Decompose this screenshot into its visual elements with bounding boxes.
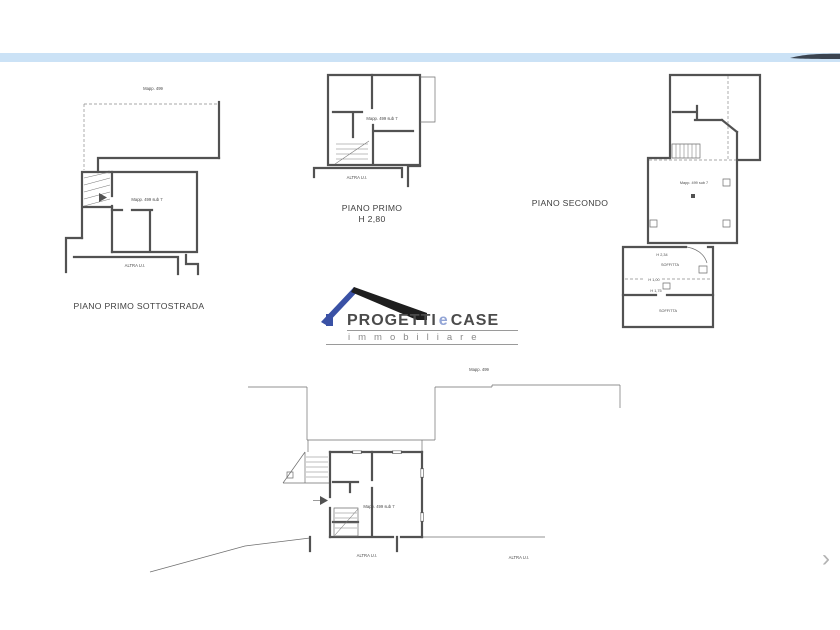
logo-text-sub: immobiliare bbox=[348, 332, 485, 343]
parcel-boundary bbox=[248, 385, 620, 440]
other-unit-label: ALTRA U.I. bbox=[357, 553, 378, 558]
unit-label: Mapp. 499 sub 7 bbox=[366, 116, 398, 121]
attic-height-upper: H 2,34 bbox=[656, 253, 667, 257]
plan2-walls bbox=[314, 75, 435, 186]
entrance-arrow-icon bbox=[320, 496, 328, 505]
attic-height-mid: H 1,00 bbox=[648, 278, 659, 282]
plan-title-sottostrada: PIANO PRIMO SOTTOSTRADA bbox=[74, 301, 205, 311]
door-swing-arc bbox=[687, 247, 707, 263]
logo-word-e: e bbox=[437, 312, 451, 329]
floorplan-primo: Mapp. 499 sub 7 ALTRA U.I. PIANO PRIMO H… bbox=[314, 75, 435, 224]
logo-divider-top bbox=[347, 330, 518, 331]
other-unit-label: ALTRA U.I. bbox=[347, 175, 368, 180]
attic-window-icons bbox=[663, 266, 707, 289]
chimney-icon bbox=[691, 194, 695, 198]
next-image-chevron[interactable]: › bbox=[822, 547, 830, 571]
floorplan-terra: Mapp. 499 Mapp. 499 sub 7 ALTRA U.I. ALT… bbox=[150, 367, 620, 572]
map-parcel-label: Mapp. 499 bbox=[143, 86, 163, 91]
attic-room-1: SOFFITTA bbox=[661, 263, 680, 267]
unit-label: Mapp. 499 sub 7 bbox=[131, 197, 163, 202]
attic-height-lower: H 1,75 bbox=[650, 289, 661, 293]
floorplan-page: Mapp. 499 Mapp. 499 sub 7 ALTRA U.I. PIA… bbox=[0, 0, 840, 630]
balcony-outline bbox=[420, 77, 435, 122]
plan-title-secondo: PIANO SECONDO bbox=[532, 198, 608, 208]
agency-logo: PROGETTIeCASE immobiliare bbox=[320, 283, 522, 349]
logo-word-case: CASE bbox=[451, 312, 499, 329]
attic-room-2: SOFFITTA bbox=[659, 309, 678, 313]
plan1-walls bbox=[66, 102, 219, 274]
floorplan-primo-sottostrada: Mapp. 499 Mapp. 499 sub 7 ALTRA U.I. PIA… bbox=[66, 86, 219, 311]
plan-title-primo: PIANO PRIMO bbox=[342, 203, 403, 213]
unit-label: Mapp. 499 sub 7 bbox=[680, 181, 708, 185]
logo-text-main: PROGETTIeCASE bbox=[347, 312, 499, 330]
floorplan-secondo: Mapp. 499 sub 7 H 2,34 SOFFITTA H 1,00 H… bbox=[532, 75, 760, 327]
terrain-line bbox=[150, 538, 310, 572]
map-parcel-label: Mapp. 499 bbox=[469, 367, 489, 372]
plan4-walls bbox=[150, 385, 620, 572]
other-unit-label: ALTRA U.I. bbox=[125, 263, 146, 268]
logo-word-progetti: PROGETTI bbox=[347, 312, 437, 329]
unit-label: Mapp. 499 sub 7 bbox=[363, 504, 395, 509]
logo-divider-bottom bbox=[326, 344, 518, 345]
plan-height-label: H 2,80 bbox=[358, 214, 385, 224]
other-unit-label-right: ALTRA U.I. bbox=[509, 555, 530, 560]
roof-window-icons bbox=[650, 179, 730, 227]
plan3-walls bbox=[623, 75, 760, 327]
